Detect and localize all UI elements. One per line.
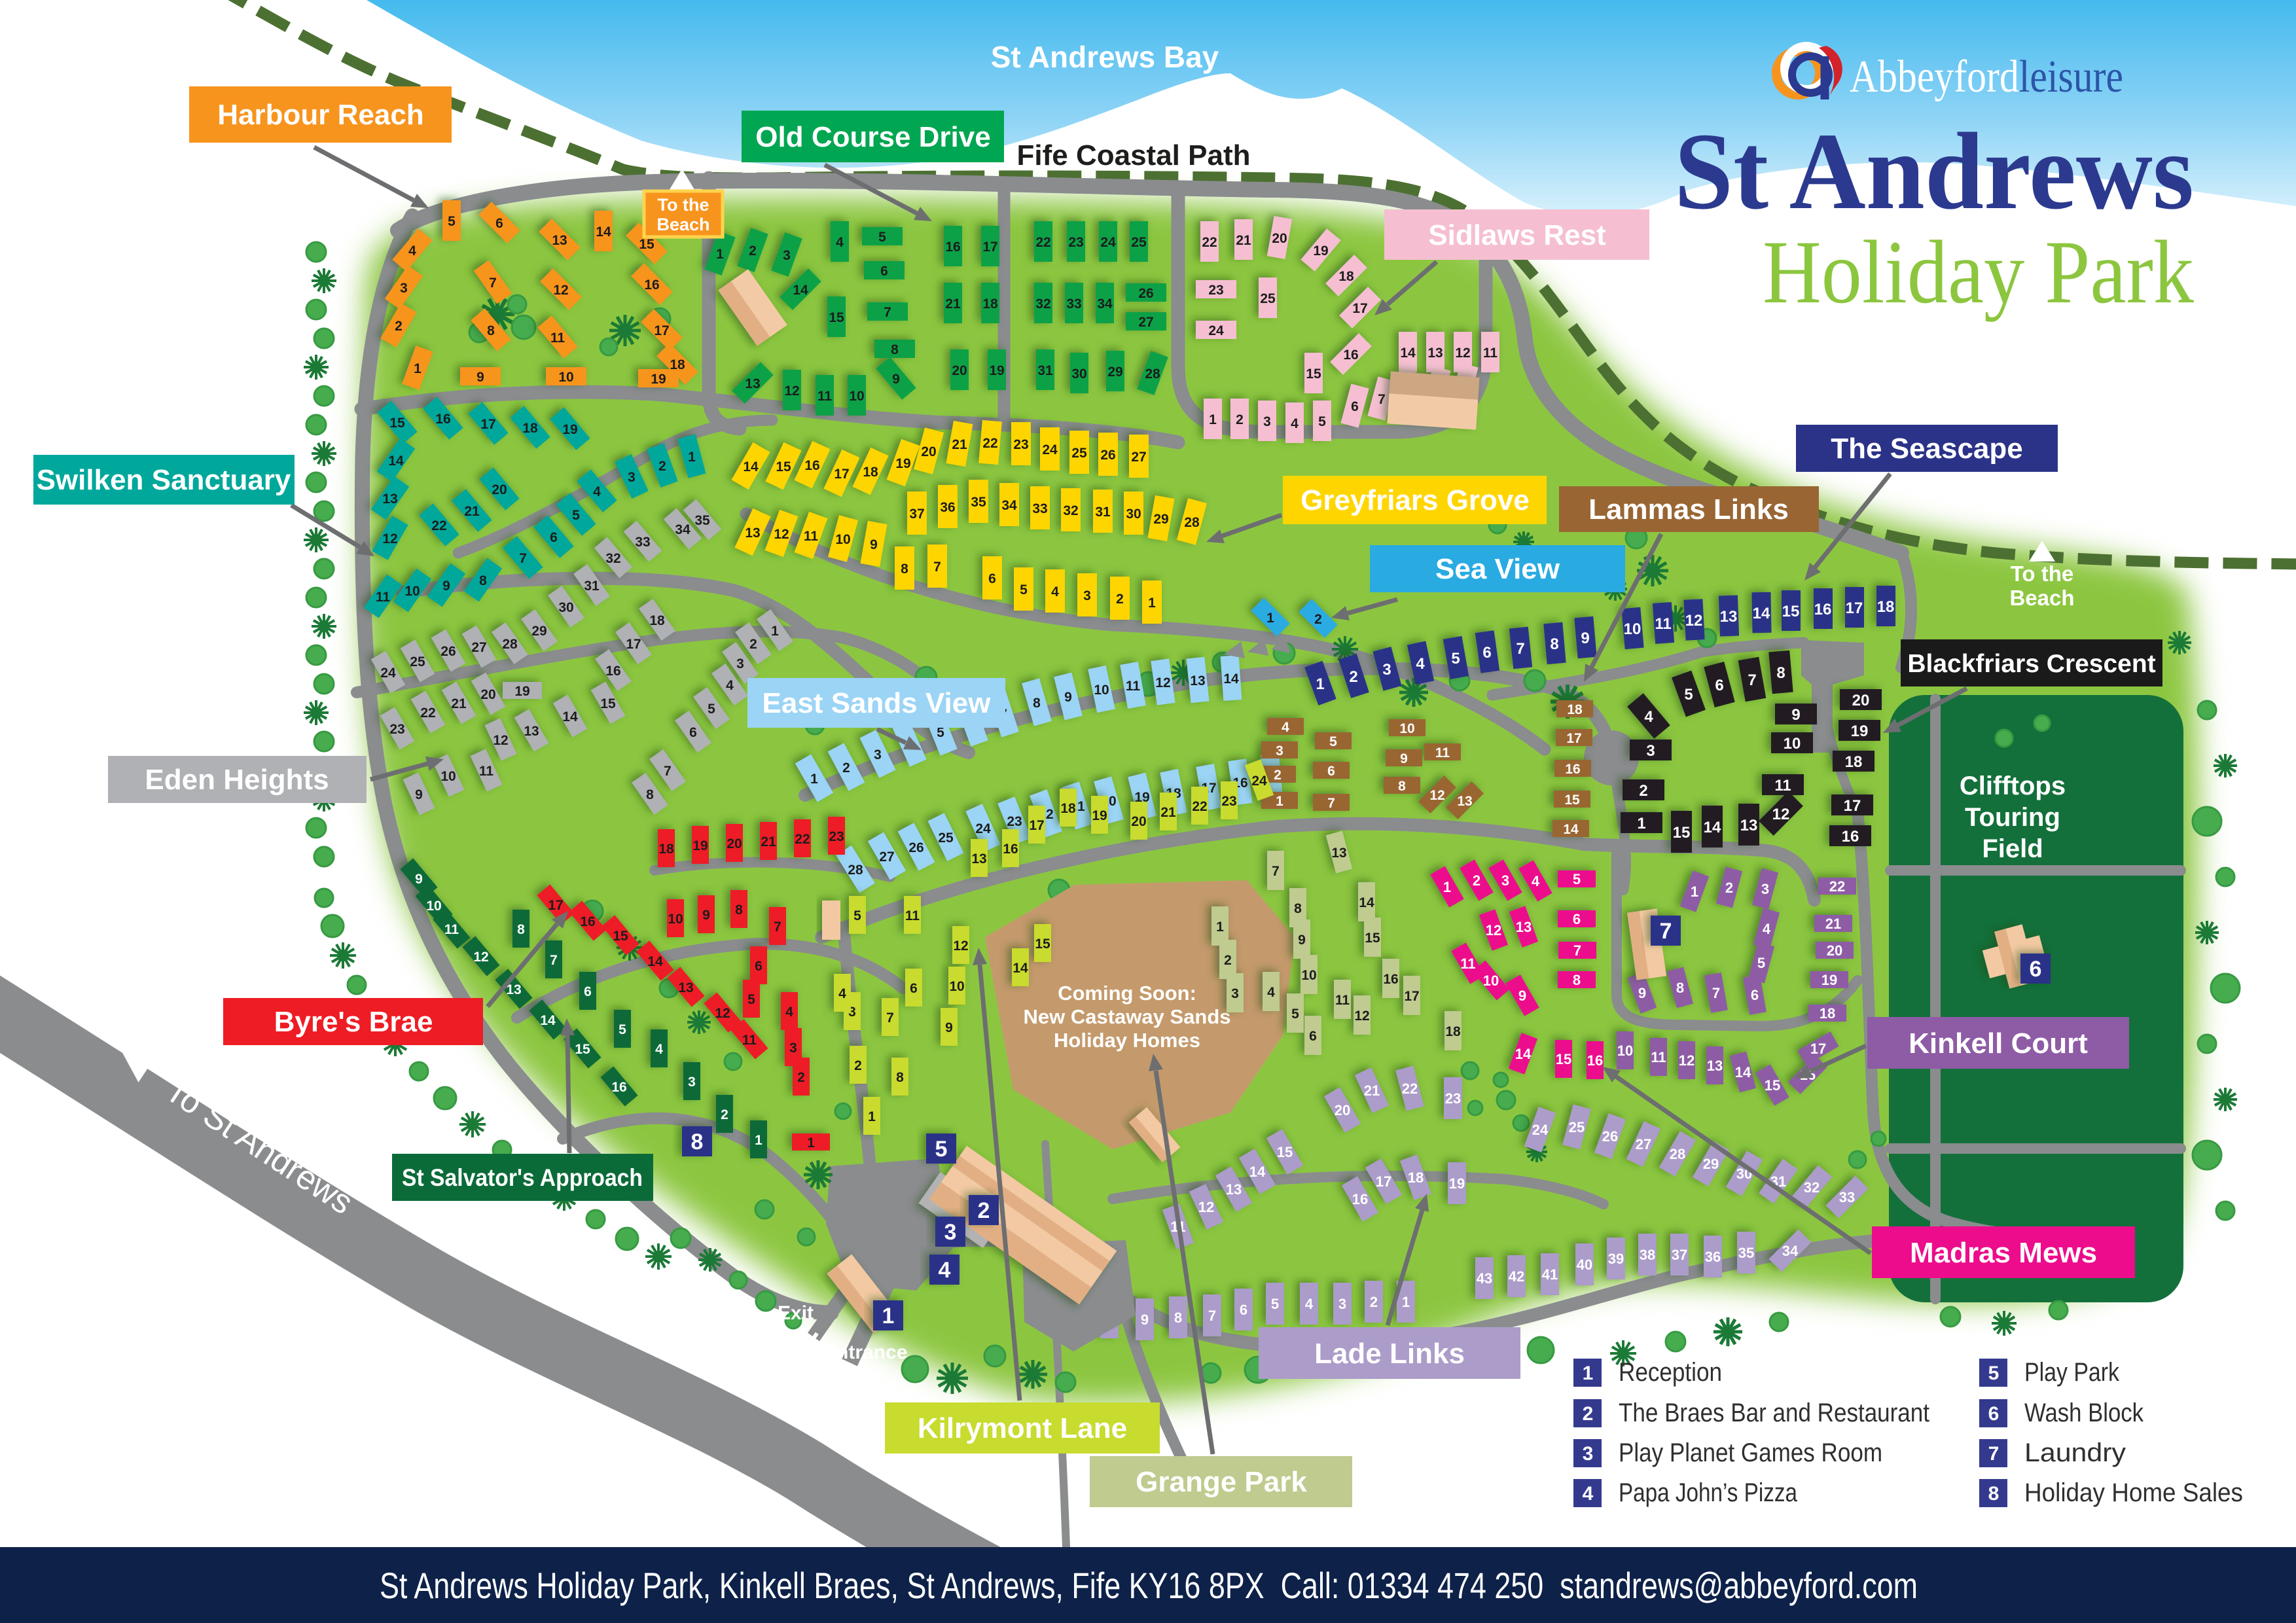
svg-text:Reception: Reception <box>1619 1358 1722 1387</box>
svg-text:St Andrews: St Andrews <box>1674 111 2194 232</box>
svg-text:28: 28 <box>1670 1146 1685 1162</box>
svg-text:14: 14 <box>562 709 578 724</box>
svg-text:18: 18 <box>522 421 538 436</box>
svg-text:15: 15 <box>1365 931 1380 946</box>
svg-text:16: 16 <box>644 277 659 293</box>
svg-text:Lade Links: Lade Links <box>1314 1338 1465 1370</box>
svg-text:22: 22 <box>1192 799 1207 814</box>
svg-text:17: 17 <box>480 417 495 432</box>
svg-text:Sidlaws Rest: Sidlaws Rest <box>1428 219 1606 251</box>
svg-text:6: 6 <box>495 216 503 231</box>
svg-text:21: 21 <box>451 696 467 711</box>
svg-text:15: 15 <box>829 310 844 325</box>
svg-text:6: 6 <box>1988 1403 2000 1425</box>
svg-text:6: 6 <box>1240 1302 1247 1318</box>
svg-text:13: 13 <box>382 491 397 507</box>
svg-text:32: 32 <box>1063 503 1078 518</box>
svg-text:Byre's Brae: Byre's Brae <box>274 1006 433 1038</box>
svg-text:Grange Park: Grange Park <box>1136 1466 1307 1498</box>
svg-text:9: 9 <box>1638 985 1646 1001</box>
svg-text:12: 12 <box>953 938 968 954</box>
svg-text:Madras Mews: Madras Mews <box>1910 1237 2097 1269</box>
svg-text:8: 8 <box>896 1070 904 1085</box>
svg-text:14: 14 <box>596 224 611 240</box>
svg-text:21: 21 <box>1825 916 1841 932</box>
svg-text:22: 22 <box>982 436 997 451</box>
svg-text:7: 7 <box>489 276 497 291</box>
svg-text:12: 12 <box>1198 1199 1214 1215</box>
svg-text:1: 1 <box>1443 879 1451 895</box>
svg-text:27: 27 <box>1138 315 1153 330</box>
svg-text:1: 1 <box>1216 919 1224 935</box>
svg-text:6: 6 <box>2030 957 2042 982</box>
svg-text:21: 21 <box>945 296 961 312</box>
svg-text:20: 20 <box>1335 1102 1350 1118</box>
svg-text:14: 14 <box>1704 819 1721 836</box>
svg-text:15: 15 <box>776 459 791 474</box>
svg-text:12: 12 <box>774 527 789 542</box>
svg-text:14: 14 <box>1013 961 1028 976</box>
svg-text:14: 14 <box>1515 1046 1532 1062</box>
svg-text:10: 10 <box>668 912 683 927</box>
svg-text:8: 8 <box>1033 696 1041 711</box>
svg-text:18: 18 <box>670 357 685 372</box>
svg-text:11: 11 <box>817 389 833 404</box>
svg-text:19: 19 <box>1092 808 1107 823</box>
svg-text:3: 3 <box>1263 414 1271 429</box>
svg-text:12: 12 <box>493 733 508 748</box>
svg-text:3: 3 <box>789 1041 797 1056</box>
svg-text:30: 30 <box>1071 366 1086 382</box>
svg-text:9: 9 <box>1400 751 1408 766</box>
svg-text:Papa John’s Pizza: Papa John’s Pizza <box>1619 1478 1798 1507</box>
svg-text:28: 28 <box>502 637 518 652</box>
svg-text:17: 17 <box>1404 989 1419 1004</box>
svg-text:Old Course Drive: Old Course Drive <box>755 121 990 153</box>
svg-text:22: 22 <box>1829 878 1845 895</box>
svg-text:6: 6 <box>755 959 762 974</box>
svg-text:14: 14 <box>793 283 808 298</box>
svg-text:7: 7 <box>1988 1443 2000 1465</box>
svg-text:20: 20 <box>952 363 967 378</box>
svg-text:18: 18 <box>658 842 674 857</box>
svg-text:43: 43 <box>1477 1270 1492 1287</box>
svg-text:1: 1 <box>868 1109 876 1124</box>
svg-text:23: 23 <box>1221 794 1236 809</box>
svg-text:33: 33 <box>1839 1189 1855 1205</box>
svg-text:22: 22 <box>1402 1080 1418 1097</box>
svg-text:11: 11 <box>905 908 920 923</box>
svg-text:18: 18 <box>1408 1169 1424 1186</box>
svg-text:8: 8 <box>646 787 654 802</box>
svg-text:36: 36 <box>1705 1249 1721 1265</box>
svg-text:14: 14 <box>540 1013 556 1028</box>
svg-text:42: 42 <box>1509 1268 1524 1285</box>
svg-text:Touring: Touring <box>1965 803 2060 832</box>
svg-text:9: 9 <box>1064 690 1072 705</box>
svg-text:10: 10 <box>1617 1043 1633 1059</box>
svg-text:35: 35 <box>694 513 710 528</box>
svg-text:17: 17 <box>1376 1173 1391 1190</box>
svg-text:2: 2 <box>1116 592 1124 607</box>
svg-text:18: 18 <box>1877 598 1895 616</box>
svg-text:27: 27 <box>879 849 894 865</box>
svg-text:5: 5 <box>1988 1363 2000 1384</box>
svg-text:4: 4 <box>785 1005 793 1020</box>
svg-text:13: 13 <box>745 376 760 391</box>
svg-text:New Castaway Sands: New Castaway Sands <box>1023 1005 1230 1028</box>
svg-text:16: 16 <box>611 1080 626 1095</box>
svg-text:13: 13 <box>1516 919 1532 935</box>
svg-text:34: 34 <box>675 522 691 537</box>
svg-text:8: 8 <box>487 323 495 338</box>
svg-text:Play Planet Games Room: Play Planet Games Room <box>1619 1438 1882 1467</box>
svg-text:7: 7 <box>886 1010 894 1026</box>
svg-text:20: 20 <box>492 482 507 497</box>
svg-text:9: 9 <box>1298 933 1306 948</box>
svg-text:29: 29 <box>1107 365 1122 380</box>
svg-text:6: 6 <box>584 984 592 999</box>
svg-text:24: 24 <box>1251 774 1267 789</box>
svg-text:1: 1 <box>755 1133 762 1148</box>
svg-text:12: 12 <box>1155 675 1170 690</box>
svg-text:3: 3 <box>1231 986 1239 1001</box>
svg-text:11: 11 <box>1651 1049 1666 1065</box>
svg-text:17: 17 <box>834 467 849 482</box>
svg-text:23: 23 <box>1007 814 1022 829</box>
svg-text:30: 30 <box>1126 507 1141 522</box>
svg-text:St Andrews Bay: St Andrews Bay <box>991 40 1219 74</box>
svg-text:10: 10 <box>849 389 864 404</box>
svg-text:3: 3 <box>1083 588 1091 603</box>
svg-text:2: 2 <box>1583 1403 1594 1425</box>
svg-text:3: 3 <box>944 1220 957 1245</box>
svg-text:10: 10 <box>1301 968 1316 983</box>
svg-text:11: 11 <box>1774 777 1791 794</box>
svg-text:38: 38 <box>1640 1247 1655 1263</box>
svg-text:3: 3 <box>628 470 636 485</box>
svg-text:16: 16 <box>1343 348 1358 363</box>
svg-text:26: 26 <box>1138 286 1153 301</box>
svg-text:13: 13 <box>1427 346 1443 361</box>
svg-text:12: 12 <box>1455 346 1470 361</box>
svg-text:11: 11 <box>479 764 494 779</box>
svg-text:10: 10 <box>1094 683 1109 698</box>
svg-text:5: 5 <box>747 992 755 1007</box>
svg-text:21: 21 <box>1364 1082 1380 1099</box>
svg-text:8: 8 <box>735 902 743 918</box>
svg-text:1: 1 <box>1209 412 1217 427</box>
svg-text:24: 24 <box>1208 323 1224 338</box>
svg-text:32: 32 <box>605 551 620 566</box>
svg-text:19: 19 <box>651 372 666 387</box>
svg-text:19: 19 <box>989 363 1004 378</box>
svg-text:26: 26 <box>440 644 456 659</box>
svg-text:7: 7 <box>1748 671 1756 689</box>
svg-text:13: 13 <box>971 851 986 866</box>
svg-text:12: 12 <box>784 383 799 399</box>
svg-text:41: 41 <box>1542 1266 1558 1283</box>
svg-text:2: 2 <box>978 1198 990 1223</box>
svg-text:18: 18 <box>649 613 665 628</box>
svg-text:22: 22 <box>795 832 810 847</box>
svg-text:24: 24 <box>1532 1122 1549 1138</box>
svg-text:4: 4 <box>593 484 601 499</box>
svg-text:21: 21 <box>1160 805 1176 820</box>
svg-text:Greyfriars Grove: Greyfriars Grove <box>1300 484 1530 516</box>
svg-text:14: 14 <box>1400 346 1416 361</box>
svg-text:2: 2 <box>749 637 757 652</box>
svg-text:4: 4 <box>1051 584 1059 599</box>
svg-text:20: 20 <box>921 444 936 459</box>
svg-text:1: 1 <box>688 450 696 465</box>
svg-text:26: 26 <box>1100 448 1115 463</box>
svg-text:5: 5 <box>1684 686 1693 704</box>
svg-text:16: 16 <box>1352 1191 1368 1207</box>
svg-text:14: 14 <box>388 454 404 469</box>
svg-text:12: 12 <box>1429 788 1444 803</box>
svg-text:11: 11 <box>1435 745 1450 760</box>
svg-text:3: 3 <box>736 656 744 671</box>
svg-text:Holiday Home Sales: Holiday Home Sales <box>2024 1478 2243 1507</box>
svg-text:7: 7 <box>519 551 527 566</box>
svg-text:7: 7 <box>884 305 891 320</box>
svg-text:18: 18 <box>1567 702 1583 717</box>
svg-text:15: 15 <box>1782 603 1800 620</box>
svg-text:19: 19 <box>692 838 708 853</box>
svg-text:1: 1 <box>716 247 724 262</box>
svg-text:4: 4 <box>1291 416 1299 431</box>
svg-text:15: 15 <box>600 696 616 711</box>
svg-text:4: 4 <box>939 1258 951 1283</box>
svg-text:37: 37 <box>1672 1247 1687 1263</box>
svg-text:20: 20 <box>1272 231 1287 246</box>
svg-text:23: 23 <box>1068 235 1083 250</box>
svg-text:15: 15 <box>575 1042 590 1057</box>
svg-text:Exit: Exit <box>778 1302 814 1324</box>
svg-text:29: 29 <box>531 624 547 639</box>
svg-text:Abbeyfordleisure: Abbeyfordleisure <box>1850 52 2123 102</box>
svg-text:7: 7 <box>1660 919 1672 944</box>
svg-text:31: 31 <box>1037 363 1053 378</box>
svg-text:5: 5 <box>572 508 580 523</box>
svg-text:4: 4 <box>1532 873 1540 889</box>
svg-text:5: 5 <box>935 1137 948 1162</box>
svg-text:11: 11 <box>1126 679 1141 694</box>
svg-text:4: 4 <box>1267 985 1275 1000</box>
svg-text:35: 35 <box>1738 1245 1754 1261</box>
svg-text:Beach: Beach <box>656 215 709 234</box>
svg-text:9: 9 <box>1518 988 1526 1004</box>
svg-text:4: 4 <box>1583 1483 1594 1505</box>
svg-text:5: 5 <box>853 908 861 923</box>
svg-text:15: 15 <box>1765 1077 1780 1094</box>
svg-text:35: 35 <box>971 495 986 510</box>
svg-text:5: 5 <box>1318 414 1326 429</box>
svg-text:13: 13 <box>1720 608 1738 626</box>
svg-text:17: 17 <box>1352 301 1367 316</box>
svg-text:8: 8 <box>891 342 899 357</box>
svg-text:The Braes Bar and Restaurant: The Braes Bar and Restaurant <box>1619 1399 1929 1427</box>
svg-text:19: 19 <box>562 422 577 437</box>
svg-text:21: 21 <box>1236 233 1251 248</box>
svg-text:6: 6 <box>988 571 996 586</box>
svg-text:9: 9 <box>1141 1311 1149 1328</box>
svg-text:10: 10 <box>558 370 573 385</box>
svg-text:St Andrews Holiday Park, Kinke: St Andrews Holiday Park, Kinkell Braes, … <box>380 1565 1918 1606</box>
svg-text:4: 4 <box>1282 720 1289 735</box>
svg-text:3: 3 <box>1276 743 1283 758</box>
svg-text:5: 5 <box>1329 734 1337 749</box>
svg-text:11: 11 <box>1335 993 1350 1008</box>
svg-text:34: 34 <box>1001 498 1017 513</box>
svg-text:11: 11 <box>550 330 565 346</box>
svg-text:10: 10 <box>1399 721 1414 736</box>
svg-text:5: 5 <box>1757 955 1765 971</box>
svg-text:To the: To the <box>658 195 709 215</box>
svg-text:13: 13 <box>1190 673 1205 688</box>
svg-text:9: 9 <box>415 872 423 887</box>
svg-text:Entrance: Entrance <box>823 1342 907 1363</box>
svg-text:9: 9 <box>870 537 878 552</box>
svg-text:34: 34 <box>1097 296 1113 312</box>
svg-text:20: 20 <box>726 836 742 851</box>
svg-text:3: 3 <box>1583 1443 1594 1465</box>
svg-text:2: 2 <box>1473 872 1480 889</box>
svg-text:32: 32 <box>1804 1179 1820 1196</box>
svg-text:3: 3 <box>1761 881 1769 897</box>
svg-text:2: 2 <box>658 459 666 474</box>
svg-text:9: 9 <box>702 908 710 923</box>
svg-text:15: 15 <box>1306 366 1321 382</box>
svg-text:36: 36 <box>940 500 955 515</box>
svg-text:4: 4 <box>1305 1296 1314 1312</box>
svg-text:2: 2 <box>1224 953 1232 968</box>
svg-text:16: 16 <box>1565 762 1580 777</box>
svg-text:10: 10 <box>949 979 964 994</box>
svg-text:3: 3 <box>783 248 791 263</box>
svg-text:1: 1 <box>810 772 818 787</box>
svg-text:5: 5 <box>619 1022 626 1037</box>
svg-text:2: 2 <box>1314 612 1322 627</box>
svg-text:16: 16 <box>1383 972 1398 987</box>
svg-text:11: 11 <box>444 922 459 937</box>
svg-text:4: 4 <box>408 243 416 259</box>
svg-text:17: 17 <box>1844 797 1861 815</box>
svg-text:8: 8 <box>1294 901 1302 916</box>
svg-text:11: 11 <box>804 529 819 544</box>
svg-text:2: 2 <box>1274 768 1282 783</box>
svg-text:10: 10 <box>1624 620 1641 638</box>
svg-text:8: 8 <box>479 573 487 588</box>
svg-text:8: 8 <box>1573 972 1581 988</box>
svg-text:7: 7 <box>1573 942 1581 959</box>
svg-text:19: 19 <box>1313 243 1328 259</box>
svg-text:26: 26 <box>1602 1128 1618 1145</box>
svg-text:6: 6 <box>880 264 888 279</box>
svg-text:8: 8 <box>1174 1310 1182 1326</box>
svg-text:14: 14 <box>1223 671 1239 687</box>
svg-text:19: 19 <box>895 456 910 471</box>
svg-text:17: 17 <box>1566 731 1581 746</box>
svg-text:7: 7 <box>1327 796 1335 811</box>
svg-text:25: 25 <box>1260 291 1276 306</box>
svg-text:20: 20 <box>1131 814 1146 829</box>
svg-text:17: 17 <box>626 637 641 652</box>
svg-text:15: 15 <box>613 929 628 944</box>
svg-text:19: 19 <box>1449 1175 1465 1192</box>
svg-text:10: 10 <box>1784 735 1801 753</box>
svg-text:25: 25 <box>1569 1119 1585 1135</box>
svg-text:16: 16 <box>1814 601 1832 618</box>
svg-text:7: 7 <box>933 560 941 575</box>
svg-text:1: 1 <box>1637 815 1645 832</box>
svg-text:10: 10 <box>1483 972 1499 989</box>
svg-text:5: 5 <box>708 702 715 717</box>
svg-text:22: 22 <box>1202 235 1217 250</box>
svg-text:29: 29 <box>1703 1156 1719 1172</box>
svg-text:Eden Heights: Eden Heights <box>145 764 329 796</box>
svg-text:The Seascape: The Seascape <box>1831 433 2023 465</box>
svg-text:Laundry: Laundry <box>2024 1438 2126 1467</box>
svg-text:7: 7 <box>550 953 558 968</box>
svg-text:29: 29 <box>1153 512 1168 527</box>
svg-text:31: 31 <box>584 579 600 594</box>
svg-text:Fife Coastal Path: Fife Coastal Path <box>1017 139 1251 171</box>
svg-text:13: 13 <box>1707 1058 1723 1074</box>
svg-text:12: 12 <box>382 531 397 546</box>
svg-text:5: 5 <box>448 214 456 229</box>
svg-text:3: 3 <box>1382 661 1391 679</box>
svg-text:16: 16 <box>804 458 819 473</box>
svg-text:1: 1 <box>1316 675 1324 693</box>
svg-text:4: 4 <box>838 986 846 1001</box>
svg-text:16: 16 <box>1587 1052 1603 1069</box>
svg-text:2: 2 <box>1236 412 1244 427</box>
svg-text:East Sands View: East Sands View <box>762 687 992 719</box>
svg-text:27: 27 <box>1131 450 1146 465</box>
svg-text:7: 7 <box>664 764 672 779</box>
svg-text:12: 12 <box>1685 612 1703 630</box>
svg-text:21: 21 <box>761 834 776 849</box>
svg-text:8: 8 <box>1676 980 1684 996</box>
svg-text:23: 23 <box>829 829 844 844</box>
svg-text:13: 13 <box>524 724 539 739</box>
svg-text:13: 13 <box>1226 1181 1242 1198</box>
svg-text:17: 17 <box>1810 1041 1826 1057</box>
svg-text:15: 15 <box>1673 824 1691 842</box>
svg-text:8: 8 <box>691 1130 704 1154</box>
svg-text:11: 11 <box>742 1033 757 1048</box>
svg-text:2: 2 <box>797 1070 805 1085</box>
svg-text:19: 19 <box>1851 722 1869 740</box>
svg-text:Coming Soon:: Coming Soon: <box>1058 982 1196 1005</box>
svg-text:5: 5 <box>1291 1007 1299 1022</box>
svg-text:4: 4 <box>836 235 844 250</box>
svg-text:12: 12 <box>715 1006 730 1021</box>
svg-text:13: 13 <box>1457 794 1472 809</box>
svg-text:16: 16 <box>945 240 960 255</box>
svg-text:12: 12 <box>553 283 568 298</box>
svg-text:Lammas Links: Lammas Links <box>1588 493 1789 526</box>
svg-text:15: 15 <box>1564 793 1580 808</box>
svg-text:11: 11 <box>1483 346 1498 361</box>
svg-text:17: 17 <box>548 898 563 913</box>
svg-text:25: 25 <box>1071 446 1087 461</box>
svg-text:19: 19 <box>1821 972 1837 988</box>
svg-text:9: 9 <box>1791 706 1800 724</box>
svg-text:7: 7 <box>774 919 781 935</box>
